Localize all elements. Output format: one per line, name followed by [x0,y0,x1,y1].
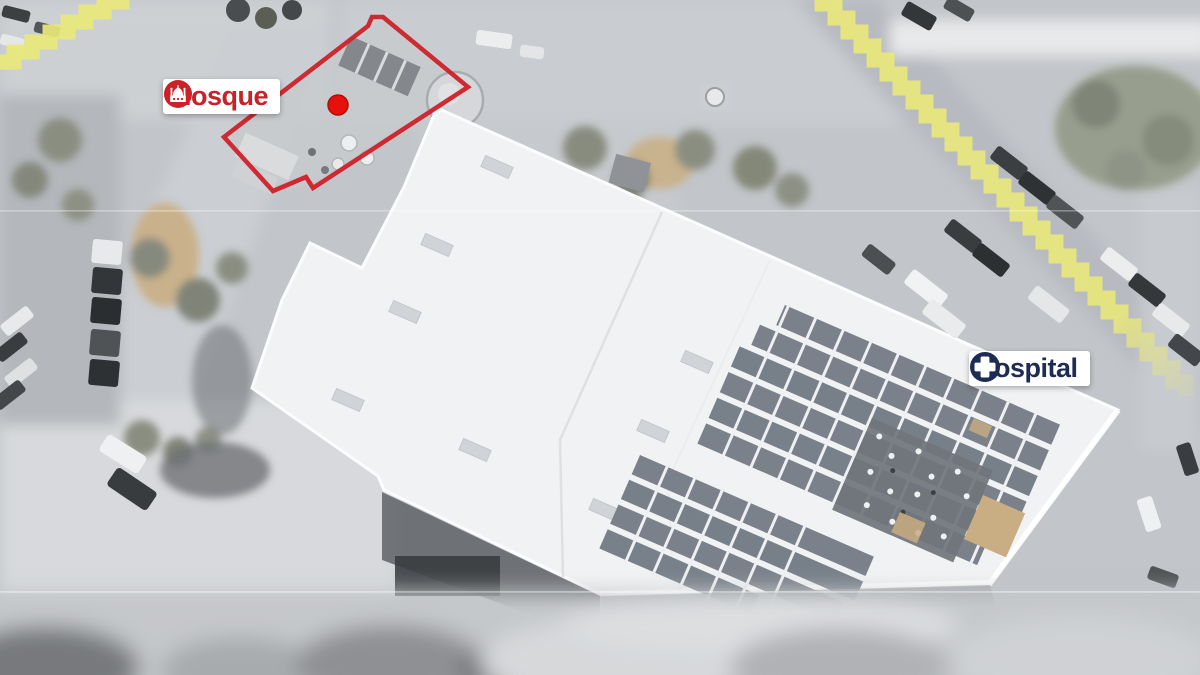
satellite-annotation-graphic: Mosque Hospital [0,0,1200,675]
scanline-artifact [0,210,1200,212]
scanline-artifact-2 [0,591,1200,593]
mosque-label: Mosque [163,79,280,114]
mosque-icon [163,79,193,109]
hospital-cross-icon [969,351,1001,383]
hospital-label: Hospital [969,351,1090,386]
blur-strip [0,592,1200,675]
mosque-marker-dot [328,95,348,115]
